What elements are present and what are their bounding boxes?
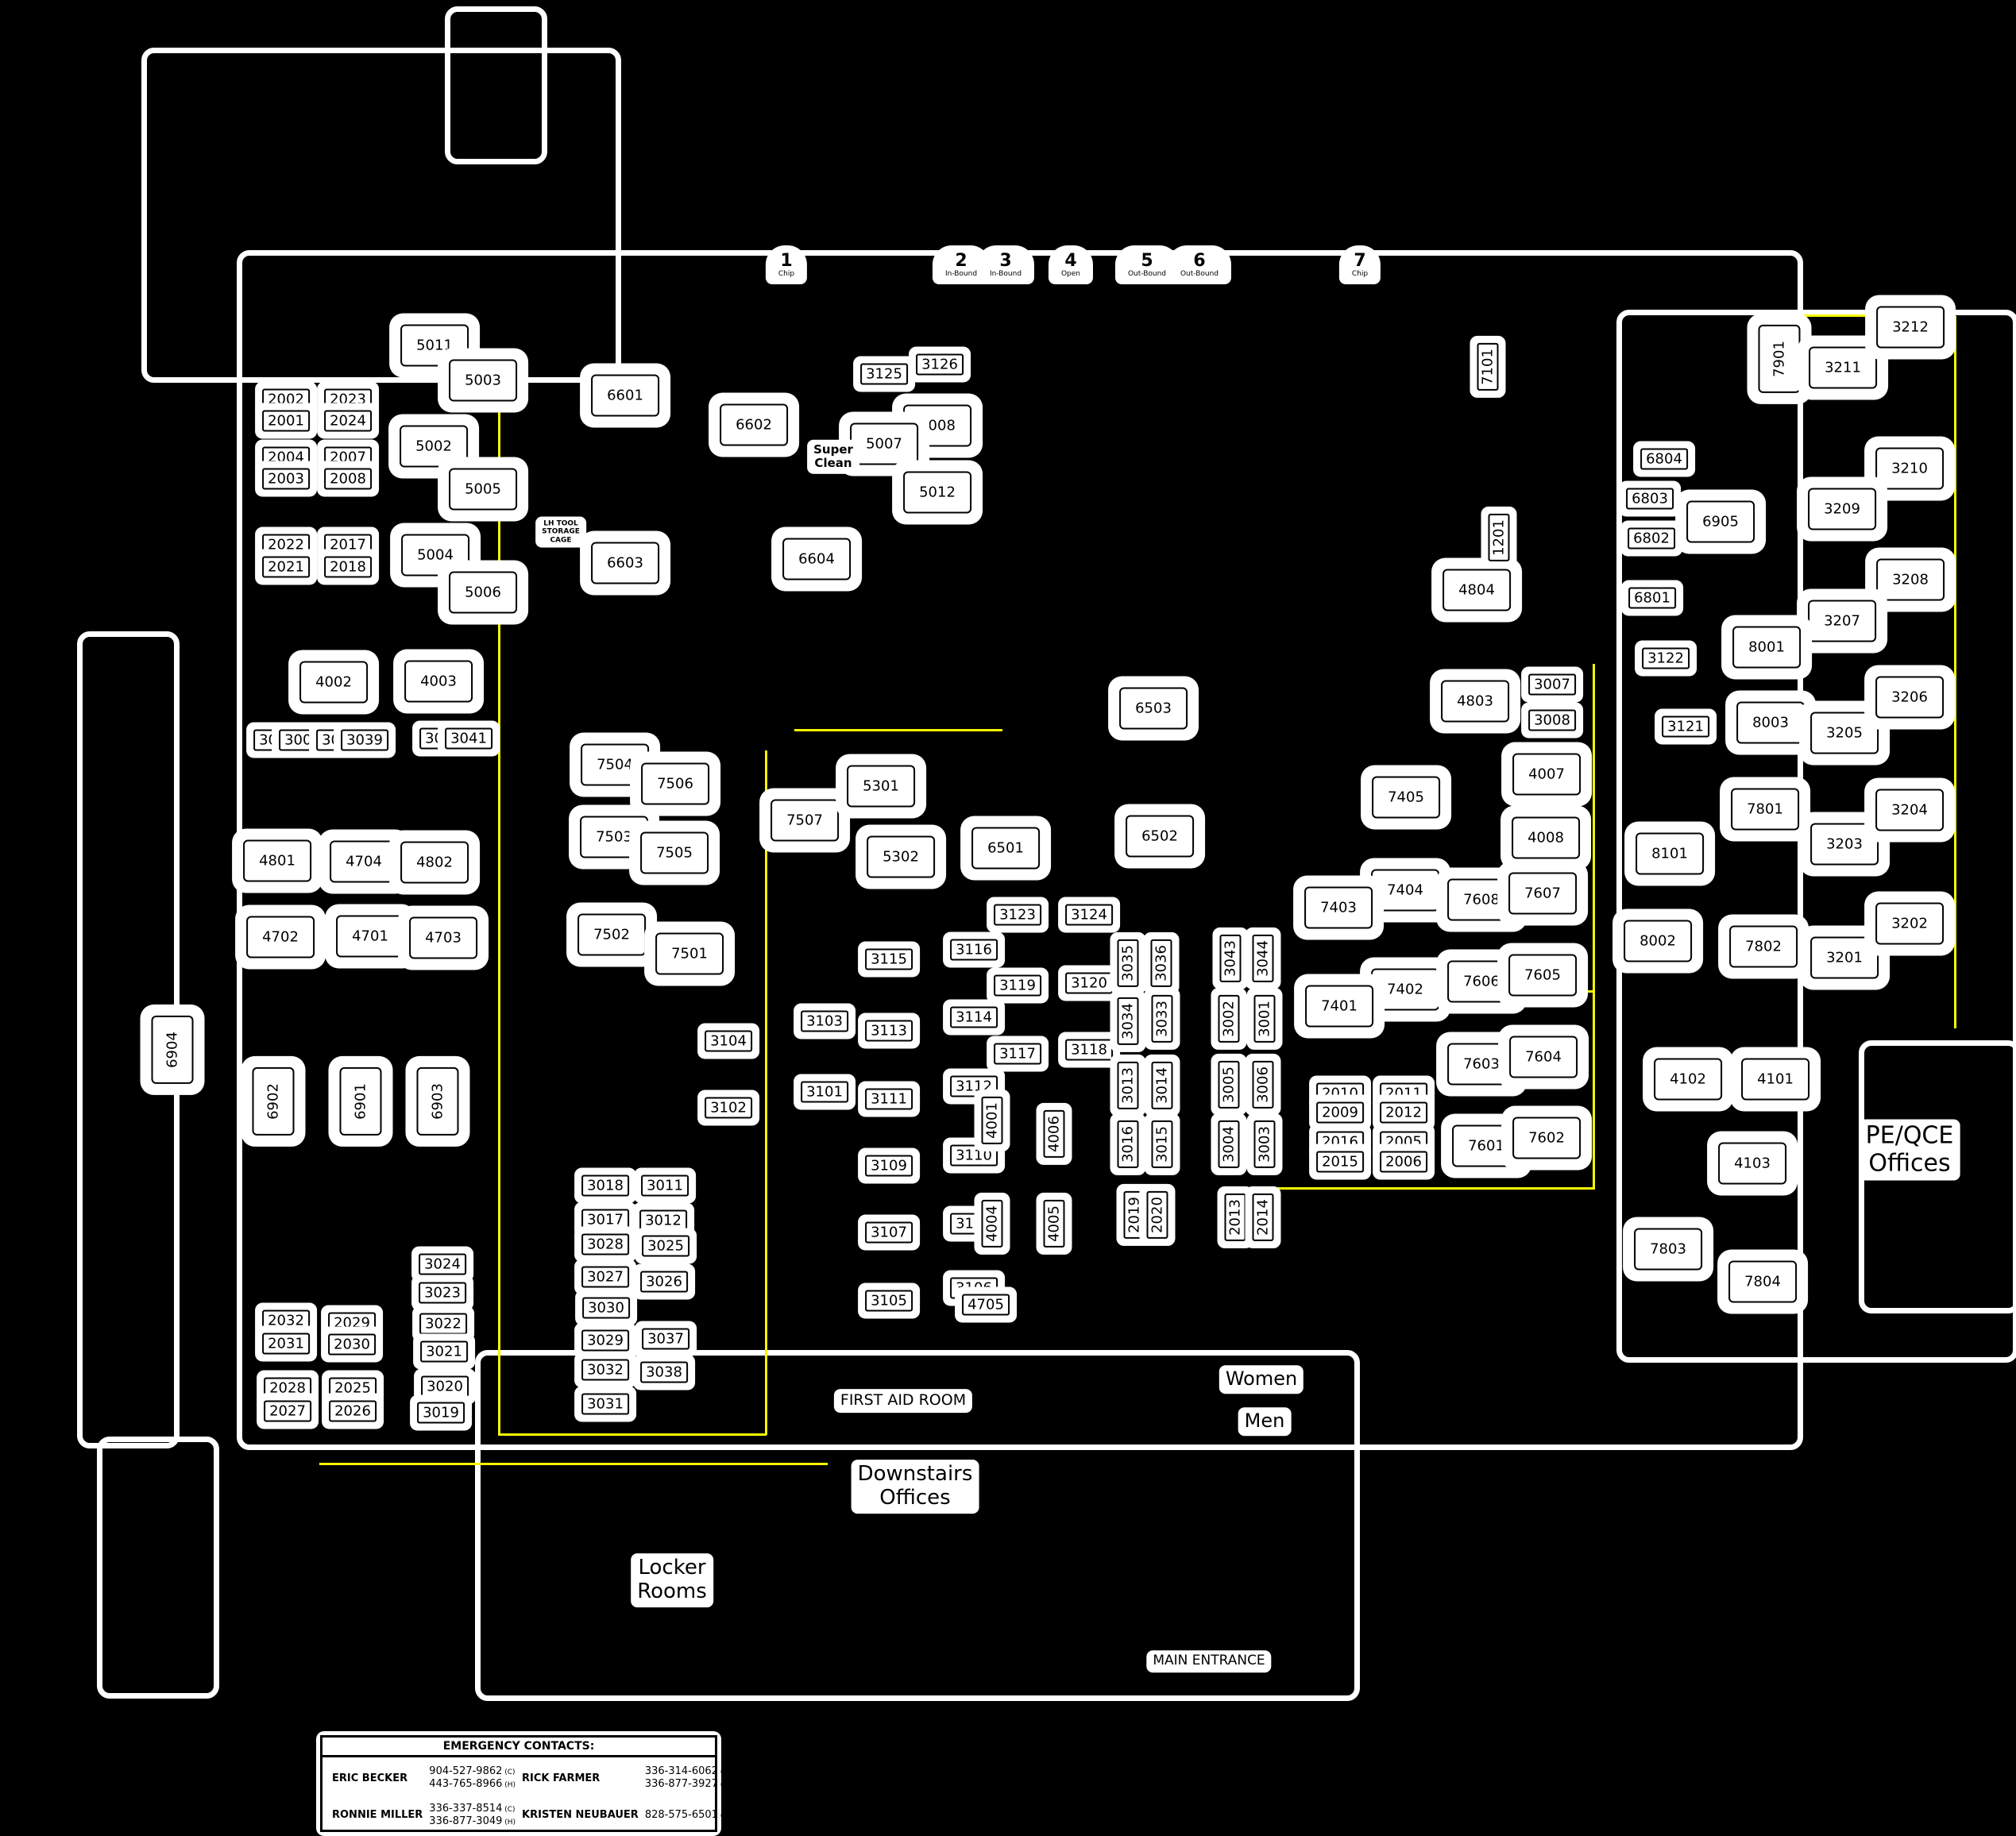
safety-line bbox=[794, 729, 1002, 731]
dock-number: 3 bbox=[990, 253, 1022, 270]
phone-type-tag: (C) bbox=[502, 1806, 515, 1814]
machine-label-7604: 7604 bbox=[1509, 1036, 1578, 1078]
phone-type-tag: (C) bbox=[502, 1768, 515, 1776]
dock-type-label: Chip bbox=[778, 270, 794, 278]
machine-label-3028: 3028 bbox=[581, 1234, 629, 1255]
emergency-contacts-inner: EMERGENCY CONTACTS: ERIC BECKER904-527-9… bbox=[320, 1735, 717, 1832]
safety-line bbox=[1593, 664, 1595, 1190]
dock-number: 7 bbox=[1352, 253, 1368, 270]
machine-label-3205: 3205 bbox=[1810, 712, 1879, 754]
machine-label-4003: 4003 bbox=[404, 661, 473, 703]
machine-label-6601: 6601 bbox=[591, 375, 659, 417]
machine-label-3021: 3021 bbox=[420, 1341, 468, 1363]
machine-label-3034: 3034 bbox=[1118, 997, 1139, 1045]
machine-label-3037: 3037 bbox=[642, 1329, 689, 1350]
contact-phone: 336-314-6062 (C) bbox=[645, 1765, 732, 1778]
safety-line bbox=[319, 1463, 828, 1465]
machine-label-7403: 7403 bbox=[1304, 887, 1373, 929]
emergency-contacts-box: EMERGENCY CONTACTS: ERIC BECKER904-527-9… bbox=[316, 1731, 721, 1836]
phone-number: 336-877-3927 bbox=[645, 1778, 718, 1790]
machine-label-3107: 3107 bbox=[865, 1222, 913, 1244]
machine-label-8002: 8002 bbox=[1624, 920, 1692, 962]
machine-label-7402: 7402 bbox=[1371, 969, 1439, 1011]
machine-label-4803: 4803 bbox=[1441, 681, 1509, 723]
area-label-locker: Locker Rooms bbox=[631, 1553, 713, 1607]
machine-label-3014: 3014 bbox=[1152, 1062, 1173, 1109]
machine-label-3005: 3005 bbox=[1218, 1061, 1240, 1109]
machine-label-7804: 7804 bbox=[1728, 1261, 1797, 1303]
area-label-women: Women bbox=[1219, 1365, 1303, 1394]
machine-label-8001: 8001 bbox=[1732, 627, 1801, 669]
dock-type-label: In-Bound bbox=[990, 270, 1022, 278]
machine-label-3008: 3008 bbox=[1528, 710, 1576, 731]
machine-label-3124: 3124 bbox=[1065, 904, 1113, 926]
machine-label-2031: 2031 bbox=[262, 1333, 310, 1355]
machine-label-5002: 5002 bbox=[400, 426, 468, 468]
machine-label-7801: 7801 bbox=[1731, 789, 1799, 831]
machine-label-3039: 3039 bbox=[341, 730, 388, 751]
dock-door-7: 7Chip bbox=[1344, 250, 1376, 280]
phone-type-tag: (C) bbox=[718, 1768, 731, 1776]
machine-label-4804: 4804 bbox=[1442, 569, 1511, 611]
machine-label-7505: 7505 bbox=[640, 832, 709, 874]
machine-label-4702: 4702 bbox=[246, 916, 315, 958]
machine-label-4705: 4705 bbox=[962, 1294, 1010, 1316]
contact-phone: 336-337-8514 (C) bbox=[429, 1803, 516, 1815]
machine-label-3116: 3116 bbox=[950, 939, 998, 961]
machine-label-3126: 3126 bbox=[916, 354, 964, 376]
machine-label-2019: 2019 bbox=[1124, 1191, 1145, 1239]
machine-label-3038: 3038 bbox=[640, 1362, 688, 1383]
machine-label-4101: 4101 bbox=[1741, 1059, 1809, 1101]
machine-label-6503: 6503 bbox=[1119, 688, 1188, 730]
machine-label-7608: 7608 bbox=[1447, 879, 1516, 921]
machine-label-3208: 3208 bbox=[1876, 559, 1945, 601]
emergency-contacts-grid: ERIC BECKER904-527-9862 (C)443-765-8966 … bbox=[322, 1757, 715, 1836]
machine-label-7501: 7501 bbox=[655, 933, 724, 975]
machine-label-3022: 3022 bbox=[419, 1313, 467, 1335]
machine-label-4703: 4703 bbox=[409, 917, 477, 959]
area-label-main-entrance: MAIN ENTRANCE bbox=[1146, 1650, 1271, 1672]
phone-type-tag: (H) bbox=[502, 1781, 516, 1789]
machine-label-3125: 3125 bbox=[860, 364, 908, 385]
machine-label-3017: 3017 bbox=[581, 1209, 629, 1231]
machine-label-3024: 3024 bbox=[419, 1254, 466, 1275]
machine-label-7101: 7101 bbox=[1477, 343, 1499, 391]
machine-label-2030: 2030 bbox=[328, 1334, 376, 1356]
machine-label-6903: 6903 bbox=[417, 1067, 459, 1136]
machine-label-2010: 2010 bbox=[1316, 1083, 1364, 1105]
machine-label-2014: 2014 bbox=[1253, 1194, 1274, 1241]
machine-label-3118: 3118 bbox=[1065, 1039, 1113, 1061]
machine-label-3111: 3111 bbox=[865, 1089, 913, 1110]
machine-label-6502: 6502 bbox=[1126, 816, 1194, 858]
machine-label-3119: 3119 bbox=[994, 975, 1041, 997]
dock-type-label: Open bbox=[1061, 270, 1080, 278]
floor-plan: 1Chip2In-Bound3In-Bound4Open5Out-Bound6O… bbox=[0, 0, 2016, 1836]
machine-label-8101: 8101 bbox=[1636, 833, 1704, 875]
machine-label-2011: 2011 bbox=[1380, 1083, 1427, 1105]
machine-label-7802: 7802 bbox=[1729, 926, 1798, 968]
machine-label-2029: 2029 bbox=[328, 1313, 376, 1334]
contact-phone: 336-877-3927 (H) bbox=[645, 1778, 732, 1791]
machine-label-3030: 3030 bbox=[582, 1298, 630, 1319]
machine-label-2008: 2008 bbox=[324, 469, 372, 490]
contact-name: ERIC BECKER bbox=[332, 1772, 423, 1784]
machine-label-6804: 6804 bbox=[1640, 449, 1688, 470]
contact-phones: 828-575-6501 (C) bbox=[645, 1809, 732, 1822]
machine-label-3012: 3012 bbox=[639, 1210, 687, 1232]
contact-name: KRISTEN NEUBAUER bbox=[522, 1809, 639, 1821]
safety-line bbox=[498, 1433, 767, 1436]
machine-label-2017: 2017 bbox=[324, 534, 372, 556]
machine-label-3043: 3043 bbox=[1220, 935, 1242, 982]
machine-label-6905: 6905 bbox=[1686, 501, 1755, 543]
machine-label-5007: 5007 bbox=[850, 423, 918, 465]
machine-label-3209: 3209 bbox=[1808, 488, 1876, 530]
machine-label-5302: 5302 bbox=[867, 836, 935, 878]
phone-type-tag: (H) bbox=[502, 1819, 516, 1826]
machine-label-3002: 3002 bbox=[1218, 995, 1240, 1043]
machine-label-3115: 3115 bbox=[865, 949, 913, 970]
machine-label-3011: 3011 bbox=[641, 1175, 689, 1197]
machine-label-3031: 3031 bbox=[581, 1394, 629, 1415]
phone-type-tag: (C) bbox=[718, 1812, 731, 1820]
dock-door-2: 2In-Bound bbox=[937, 250, 985, 280]
machine-label-4008: 4008 bbox=[1512, 817, 1580, 859]
machine-label-3020: 3020 bbox=[421, 1376, 469, 1398]
contact-phone: 904-527-9862 (C) bbox=[429, 1765, 516, 1778]
machine-label-3122: 3122 bbox=[1642, 648, 1690, 669]
dock-door-1: 1Chip bbox=[770, 250, 802, 280]
machine-label-7605: 7605 bbox=[1508, 955, 1577, 997]
machine-label-3003: 3003 bbox=[1254, 1120, 1276, 1168]
dock-number: 6 bbox=[1180, 253, 1218, 270]
safety-line bbox=[1251, 1187, 1594, 1190]
machine-label-5012: 5012 bbox=[903, 472, 971, 514]
machine-label-3207: 3207 bbox=[1808, 600, 1876, 642]
machine-label-2013: 2013 bbox=[1225, 1194, 1246, 1241]
machine-label-6802: 6802 bbox=[1628, 528, 1675, 550]
machine-label-3018: 3018 bbox=[581, 1175, 629, 1197]
machine-label-5004: 5004 bbox=[401, 534, 469, 577]
dock-type-label: Chip bbox=[1352, 270, 1368, 278]
machine-label-7502: 7502 bbox=[577, 914, 646, 956]
machine-label-5301: 5301 bbox=[847, 766, 915, 808]
machine-label-7404: 7404 bbox=[1371, 870, 1439, 912]
contact-phones: 336-337-8514 (C)336-877-3049 (H) bbox=[429, 1803, 516, 1829]
machine-label-2022: 2022 bbox=[262, 534, 310, 556]
machine-label-2015: 2015 bbox=[1316, 1151, 1364, 1173]
dock-number: 5 bbox=[1128, 253, 1166, 270]
machine-label-3035: 3035 bbox=[1118, 939, 1139, 987]
machine-label-4004: 4004 bbox=[982, 1200, 1003, 1248]
safety-line bbox=[765, 750, 767, 1435]
building-outline bbox=[97, 1437, 219, 1699]
machine-label-3015: 3015 bbox=[1152, 1120, 1173, 1168]
machine-label-4801: 4801 bbox=[243, 840, 311, 882]
machine-label-2028: 2028 bbox=[264, 1378, 311, 1399]
area-label-pe-qce: PE/QCE Offices bbox=[1860, 1120, 1960, 1181]
machine-label-6801: 6801 bbox=[1628, 588, 1676, 609]
machine-label-8003: 8003 bbox=[1736, 702, 1805, 744]
machine-label-3206: 3206 bbox=[1875, 677, 1944, 719]
machine-label-4006: 4006 bbox=[1044, 1110, 1065, 1158]
area-label-super: Super Clean bbox=[807, 440, 859, 474]
machine-label-5006: 5006 bbox=[449, 572, 517, 614]
machine-label-3026: 3026 bbox=[640, 1271, 688, 1293]
machine-label-3105: 3105 bbox=[865, 1290, 913, 1312]
machine-label-3029: 3029 bbox=[581, 1330, 629, 1352]
machine-label-3104: 3104 bbox=[705, 1031, 752, 1052]
machine-label-7606: 7606 bbox=[1447, 961, 1516, 1003]
machine-label-2026: 2026 bbox=[329, 1401, 377, 1422]
machine-label-4002: 4002 bbox=[299, 661, 368, 704]
machine-label-3007: 3007 bbox=[1528, 674, 1576, 696]
dock-type-label: Out-Bound bbox=[1128, 270, 1166, 278]
phone-number: 336-337-8514 bbox=[429, 1803, 502, 1815]
machine-label-3023: 3023 bbox=[419, 1282, 466, 1304]
dock-number: 2 bbox=[945, 253, 977, 270]
machine-label-7506: 7506 bbox=[641, 763, 709, 805]
machine-label-4102: 4102 bbox=[1654, 1059, 1722, 1101]
machine-label-3117: 3117 bbox=[994, 1043, 1041, 1065]
contact-phone: 336-877-3049 (H) bbox=[429, 1815, 516, 1828]
machine-label-5003: 5003 bbox=[449, 360, 517, 402]
safety-line bbox=[1954, 316, 1956, 1028]
machine-label-3210: 3210 bbox=[1875, 448, 1944, 490]
area-label-men: Men bbox=[1238, 1407, 1292, 1436]
machine-label-7507: 7507 bbox=[770, 800, 839, 842]
machine-label-3032: 3032 bbox=[581, 1360, 629, 1381]
machine-label-2018: 2018 bbox=[324, 557, 372, 578]
phone-number: 336-314-6062 bbox=[645, 1765, 718, 1777]
machine-label-4704: 4704 bbox=[330, 841, 398, 883]
machine-label-7405: 7405 bbox=[1372, 777, 1440, 819]
machine-label-3123: 3123 bbox=[994, 904, 1041, 926]
contact-phones: 336-314-6062 (C)336-877-3927 (H) bbox=[645, 1765, 732, 1792]
machine-label-3019: 3019 bbox=[417, 1402, 465, 1424]
phone-number: 828-575-6501 bbox=[645, 1809, 718, 1821]
machine-label-3109: 3109 bbox=[865, 1155, 913, 1177]
machine-label-3036: 3036 bbox=[1151, 939, 1172, 987]
dock-number: 1 bbox=[778, 253, 794, 270]
machine-label-3114: 3114 bbox=[950, 1007, 998, 1028]
machine-label-5005: 5005 bbox=[449, 469, 517, 511]
machine-label-2020: 2020 bbox=[1147, 1191, 1168, 1239]
machine-label-3016: 3016 bbox=[1118, 1120, 1139, 1168]
dock-door-3: 3In-Bound bbox=[982, 250, 1029, 280]
machine-label-2007: 2007 bbox=[324, 447, 372, 469]
phone-number: 336-877-3049 bbox=[429, 1815, 502, 1827]
machine-label-1201: 1201 bbox=[1489, 514, 1510, 561]
machine-label-3113: 3113 bbox=[865, 1020, 913, 1042]
machine-label-2006: 2006 bbox=[1380, 1151, 1427, 1173]
contact-phones: 904-527-9862 (C)443-765-8966 (H) bbox=[429, 1765, 516, 1792]
machine-label-3112: 3112 bbox=[950, 1076, 998, 1097]
machine-label-3121: 3121 bbox=[1662, 716, 1709, 738]
emergency-contacts-title: EMERGENCY CONTACTS: bbox=[322, 1738, 715, 1757]
machine-label-7901: 7901 bbox=[1759, 325, 1801, 393]
machine-label-3013: 3013 bbox=[1118, 1062, 1139, 1109]
machine-label-3201: 3201 bbox=[1810, 937, 1879, 979]
machine-label-3033: 3033 bbox=[1152, 995, 1173, 1043]
machine-label-6603: 6603 bbox=[591, 542, 659, 584]
machine-label-2025: 2025 bbox=[329, 1378, 377, 1399]
machine-label-2023: 2023 bbox=[324, 389, 372, 411]
machine-label-6604: 6604 bbox=[782, 538, 851, 580]
dock-number: 4 bbox=[1061, 253, 1080, 270]
machine-label-2009: 2009 bbox=[1316, 1102, 1364, 1124]
machine-label-2012: 2012 bbox=[1380, 1102, 1427, 1124]
machine-label-2016: 2016 bbox=[1316, 1132, 1364, 1153]
machine-label-6901: 6901 bbox=[340, 1067, 382, 1136]
dock-door-4: 4Open bbox=[1053, 250, 1088, 280]
machine-label-6904: 6904 bbox=[152, 1016, 194, 1084]
building-outline bbox=[445, 6, 547, 164]
safety-line bbox=[498, 389, 500, 1436]
machine-label-4802: 4802 bbox=[400, 842, 469, 884]
contact-phone: 828-575-6501 (C) bbox=[645, 1809, 732, 1822]
machine-label-6902: 6902 bbox=[253, 1067, 295, 1136]
area-label-downstairs: Downstairs Offices bbox=[852, 1460, 979, 1514]
machine-label-3204: 3204 bbox=[1875, 789, 1944, 831]
machine-label-2003: 2003 bbox=[262, 469, 310, 490]
dock-door-5: 5Out-Bound bbox=[1120, 250, 1174, 280]
machine-label-2001: 2001 bbox=[262, 411, 310, 432]
dock-type-label: Out-Bound bbox=[1180, 270, 1218, 278]
machine-label-3202: 3202 bbox=[1875, 903, 1944, 945]
area-label-first-aid-room: FIRST AID ROOM bbox=[834, 1389, 972, 1413]
machine-label-3203: 3203 bbox=[1810, 823, 1879, 866]
machine-label-7607: 7607 bbox=[1508, 873, 1577, 915]
contact-phone: 443-765-8966 (H) bbox=[429, 1778, 516, 1791]
machine-label-6501: 6501 bbox=[971, 827, 1040, 870]
machine-label-3001: 3001 bbox=[1254, 995, 1276, 1043]
dock-door-6: 6Out-Bound bbox=[1172, 250, 1226, 280]
machine-label-3027: 3027 bbox=[581, 1267, 629, 1288]
machine-label-3102: 3102 bbox=[705, 1097, 752, 1119]
machine-label-7602: 7602 bbox=[1512, 1117, 1581, 1159]
machine-label-4005: 4005 bbox=[1044, 1200, 1065, 1248]
machine-label-2032: 2032 bbox=[262, 1310, 310, 1332]
contact-name: RICK FARMER bbox=[522, 1772, 639, 1784]
machine-label-2024: 2024 bbox=[324, 411, 372, 432]
machine-label-3212: 3212 bbox=[1876, 307, 1945, 349]
machine-label-3103: 3103 bbox=[801, 1011, 848, 1032]
dock-type-label: In-Bound bbox=[945, 270, 977, 278]
machine-label-3004: 3004 bbox=[1218, 1120, 1240, 1168]
machine-label-7603: 7603 bbox=[1447, 1043, 1516, 1086]
machine-label-3006: 3006 bbox=[1253, 1061, 1274, 1109]
machine-label-2005: 2005 bbox=[1380, 1132, 1427, 1153]
machine-label-3110: 3110 bbox=[950, 1145, 998, 1167]
machine-label-4701: 4701 bbox=[336, 916, 404, 958]
machine-label-3211: 3211 bbox=[1809, 347, 1877, 389]
machine-label-3041: 3041 bbox=[445, 728, 492, 750]
machine-label-7803: 7803 bbox=[1634, 1228, 1702, 1271]
machine-label-7503: 7503 bbox=[580, 816, 648, 858]
machine-label-3044: 3044 bbox=[1253, 935, 1274, 982]
machine-label-4001: 4001 bbox=[982, 1097, 1003, 1144]
machine-label-2027: 2027 bbox=[264, 1401, 311, 1422]
machine-label-2002: 2002 bbox=[262, 389, 310, 411]
machine-label-2004: 2004 bbox=[262, 447, 310, 469]
area-label-lh-tool: LH TOOL STORAGE CAGE bbox=[535, 516, 586, 547]
machine-label-4103: 4103 bbox=[1718, 1143, 1786, 1185]
machine-label-7504: 7504 bbox=[581, 744, 649, 786]
machine-label-4007: 4007 bbox=[1512, 754, 1581, 796]
phone-number: 904-527-9862 bbox=[429, 1765, 502, 1777]
contact-name: RONNIE MILLER bbox=[332, 1809, 423, 1821]
phone-type-tag: (H) bbox=[718, 1781, 732, 1789]
machine-label-6803: 6803 bbox=[1626, 488, 1674, 510]
machine-label-7601: 7601 bbox=[1452, 1125, 1520, 1167]
machine-label-7401: 7401 bbox=[1305, 985, 1373, 1028]
machine-label-3101: 3101 bbox=[801, 1082, 848, 1103]
machine-label-6602: 6602 bbox=[720, 404, 788, 446]
machine-label-3025: 3025 bbox=[642, 1236, 689, 1257]
machine-label-2021: 2021 bbox=[262, 557, 310, 578]
phone-number: 443-765-8966 bbox=[429, 1778, 502, 1790]
machine-label-3120: 3120 bbox=[1065, 973, 1113, 994]
